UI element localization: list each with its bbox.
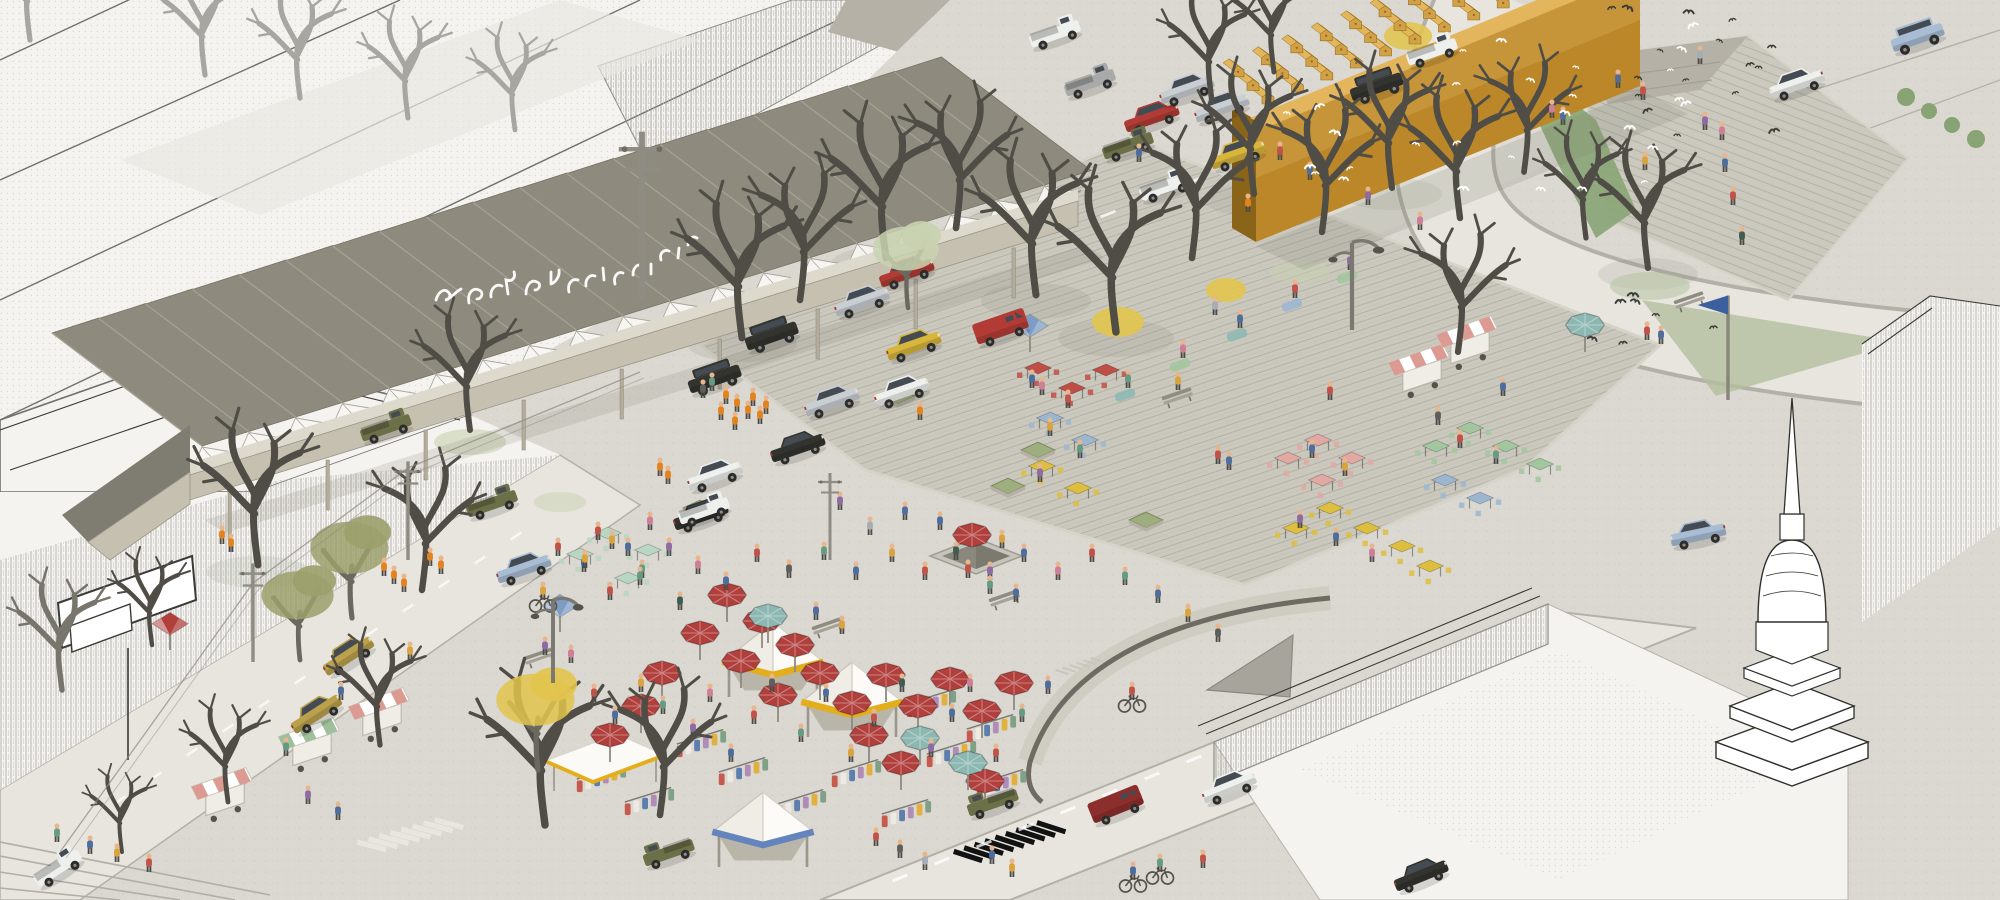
blob bbox=[1610, 272, 1690, 300]
bush bbox=[1921, 103, 1937, 119]
plaza-illustration bbox=[0, 0, 2000, 900]
bush bbox=[1944, 117, 1960, 133]
blob bbox=[534, 492, 586, 512]
blob bbox=[1206, 278, 1246, 302]
bush bbox=[1967, 130, 1985, 148]
illustration-stage bbox=[0, 0, 2000, 900]
bush bbox=[1897, 88, 1915, 106]
bird bbox=[1460, 50, 1466, 52]
bird bbox=[1768, 45, 1776, 47]
